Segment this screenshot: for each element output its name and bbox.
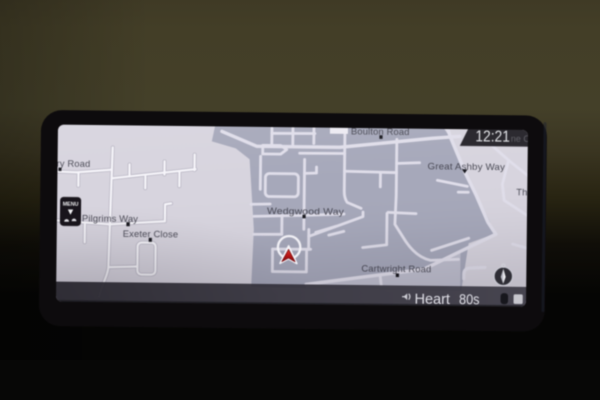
svg-text:MENU: MENU xyxy=(63,202,79,208)
svg-text:12:21: 12:21 xyxy=(475,128,510,145)
svg-text:80s: 80s xyxy=(459,292,480,308)
svg-text:ne C: ne C xyxy=(511,134,531,144)
svg-text:Heart: Heart xyxy=(414,292,450,308)
